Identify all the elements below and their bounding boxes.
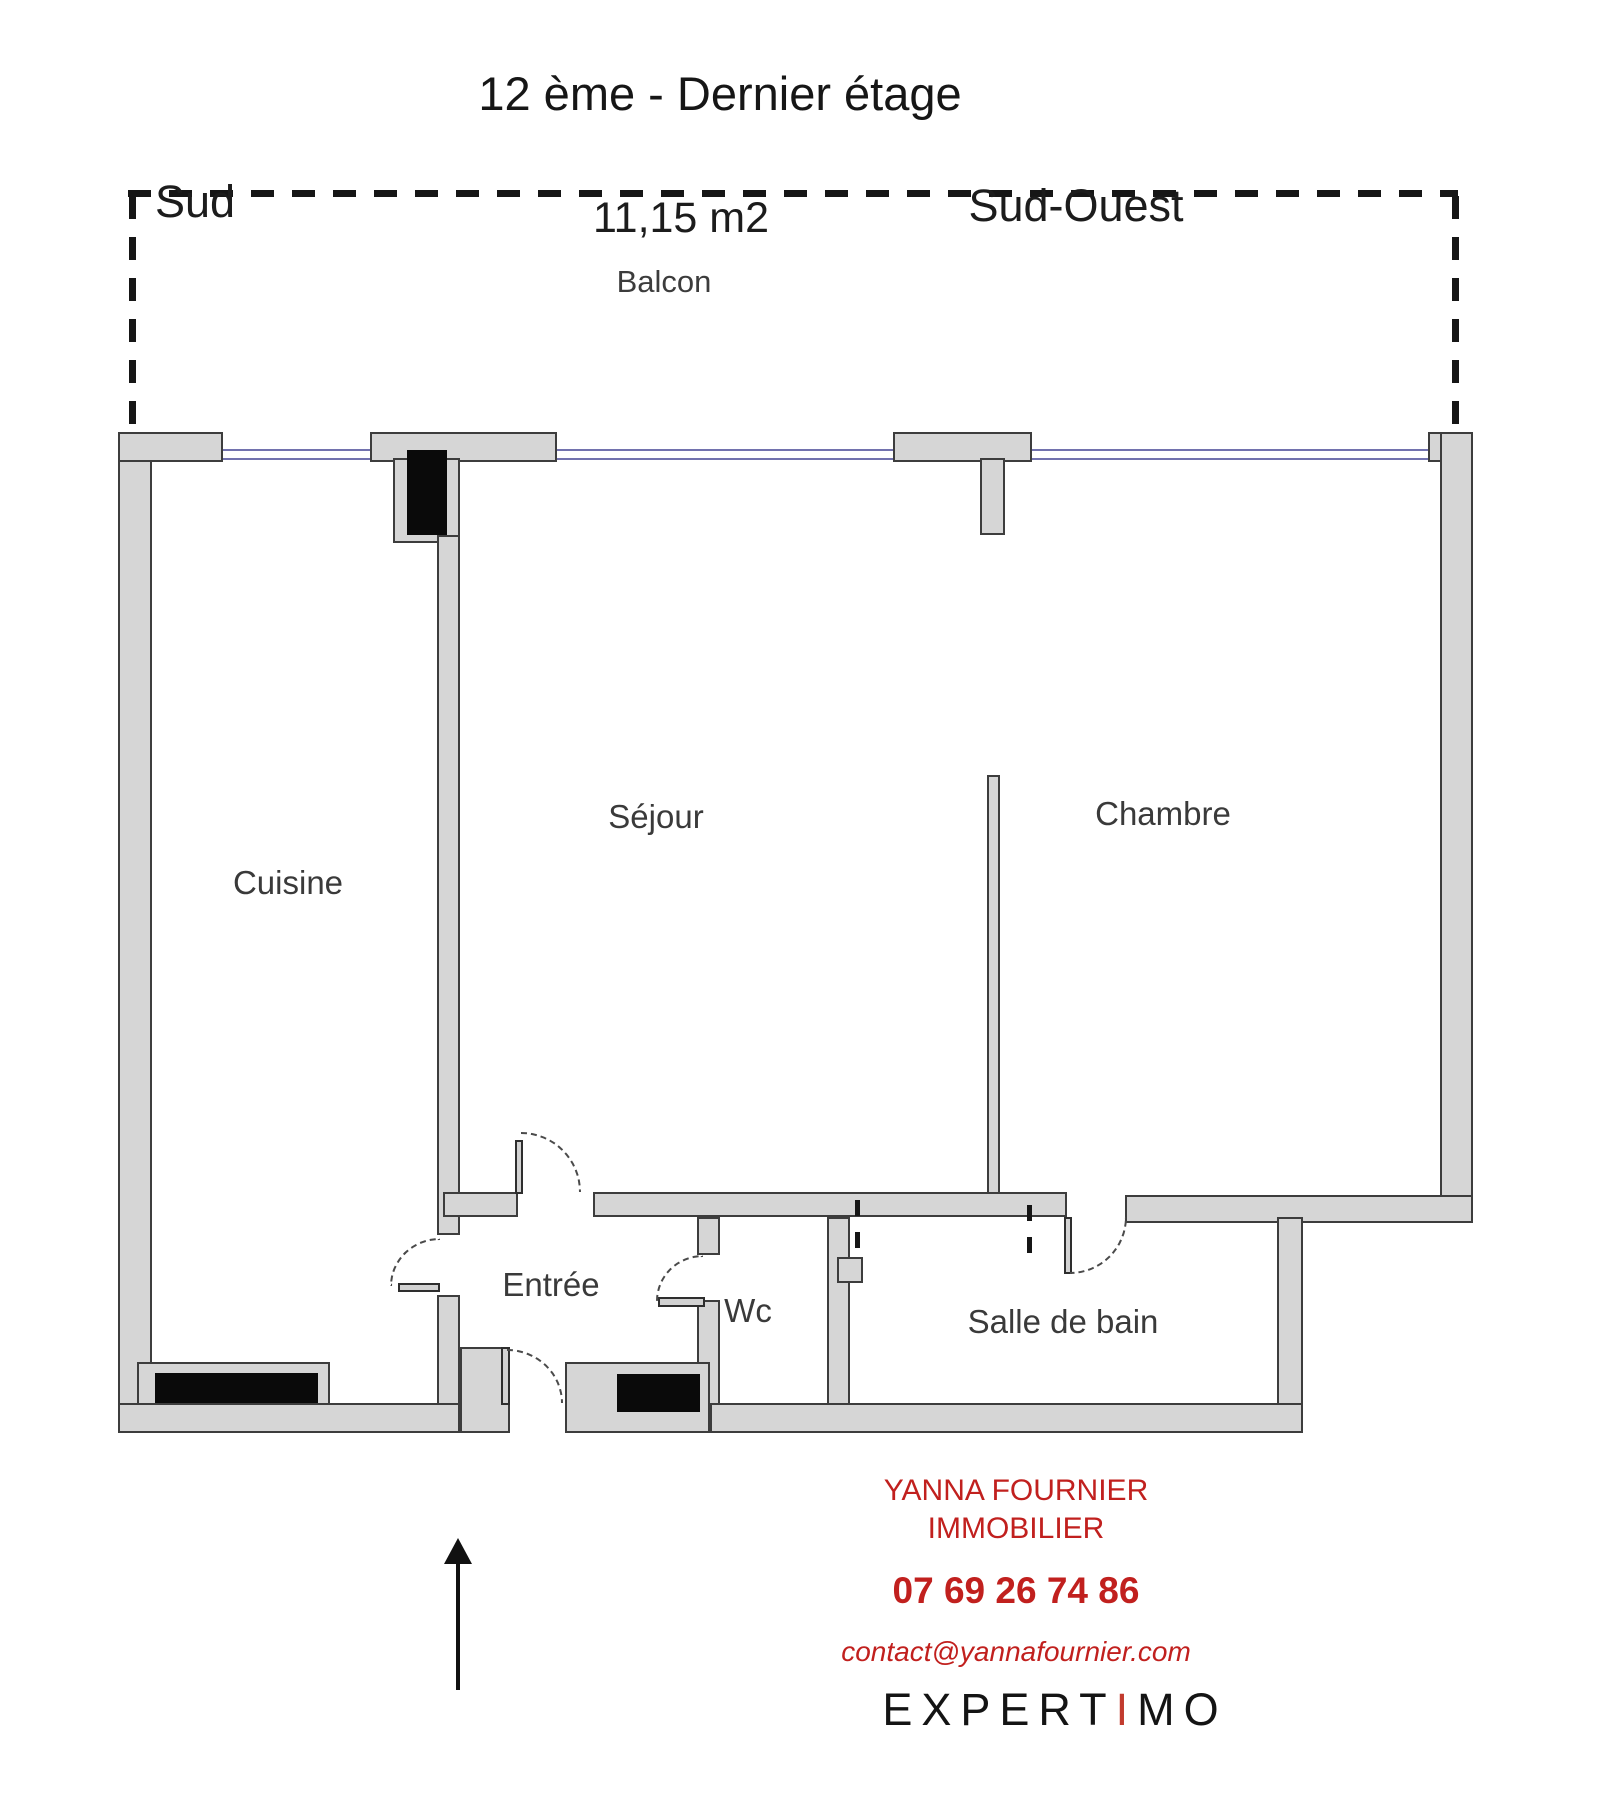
- door-arc-living-room: [521, 1132, 581, 1192]
- door-arc-bathroom: [1070, 1217, 1127, 1274]
- page-title: 12 ème - Dernier étage: [0, 66, 1440, 121]
- wall-entrance-top-left: [443, 1192, 518, 1217]
- room-label-kitchen: Cuisine: [138, 864, 438, 902]
- balcony-label: Balcon: [514, 264, 814, 300]
- room-label-entrance: Entrée: [426, 1266, 676, 1304]
- duct-black-box: [407, 450, 447, 535]
- wall-bathroom-right: [1277, 1217, 1303, 1407]
- wall-top-pier-2: [893, 432, 1032, 462]
- wall-exterior-right: [1440, 432, 1473, 1223]
- wall-top-pier-2-stem: [980, 458, 1005, 535]
- wall-living-bedroom-partition: [987, 775, 1000, 1195]
- entrance-mat-black-box: [617, 1374, 700, 1412]
- logo-part2: MO: [1137, 1684, 1228, 1735]
- room-label-living-room: Séjour: [506, 798, 806, 836]
- wall-exterior-left: [118, 432, 152, 1433]
- dashed-opening-bathroom: [1027, 1205, 1032, 1257]
- wall-entrance-wc-top: [593, 1192, 1067, 1217]
- logo-part1: EXPERT: [882, 1684, 1115, 1735]
- expertimo-logo: EXPERTIMO: [855, 1684, 1255, 1736]
- agency-name-line2: IMMOBILIER: [716, 1510, 1316, 1548]
- window-bedroom: [1032, 449, 1428, 460]
- orientation-label-sud: Sud: [155, 176, 235, 228]
- balcony-dashed-line-right: [1452, 196, 1459, 452]
- orientation-label-sud-ouest: Sud-Ouest: [876, 180, 1276, 232]
- balcony-dashed-line-left: [129, 196, 136, 438]
- entrance-arrow-shaft: [456, 1560, 460, 1690]
- wall-bottom-right: [710, 1403, 1303, 1433]
- wall-kitchen-entrance-lower: [437, 1295, 460, 1407]
- balcony-area-label: 11,15 m2: [481, 194, 881, 243]
- wall-bottom-left: [118, 1403, 460, 1433]
- logo-accent-letter: I: [1116, 1684, 1138, 1735]
- room-label-bedroom: Chambre: [1013, 795, 1313, 833]
- floor-plan: 12 ème - Dernier étage Sud 11,15 m2 Sud-…: [0, 0, 1600, 1809]
- window-kitchen: [223, 449, 370, 460]
- agency-email: contact@yannafournier.com: [716, 1636, 1316, 1668]
- wall-wc-left-upper: [697, 1217, 720, 1255]
- agency-name-line1: YANNA FOURNIER: [716, 1472, 1316, 1510]
- agency-phone: 07 69 26 74 86: [716, 1570, 1316, 1612]
- wall-top-corner-left: [118, 432, 223, 462]
- room-label-bathroom: Salle de bain: [913, 1303, 1213, 1341]
- room-label-wc: Wc: [648, 1292, 848, 1330]
- agency-contact-block: YANNA FOURNIER IMMOBILIER 07 69 26 74 86…: [716, 1472, 1316, 1668]
- door-arc-entrance: [507, 1349, 563, 1403]
- window-living-room: [557, 449, 893, 460]
- dashed-opening-wc-bathroom: [855, 1200, 860, 1262]
- wall-kitchen-entrance-upper: [437, 535, 460, 1235]
